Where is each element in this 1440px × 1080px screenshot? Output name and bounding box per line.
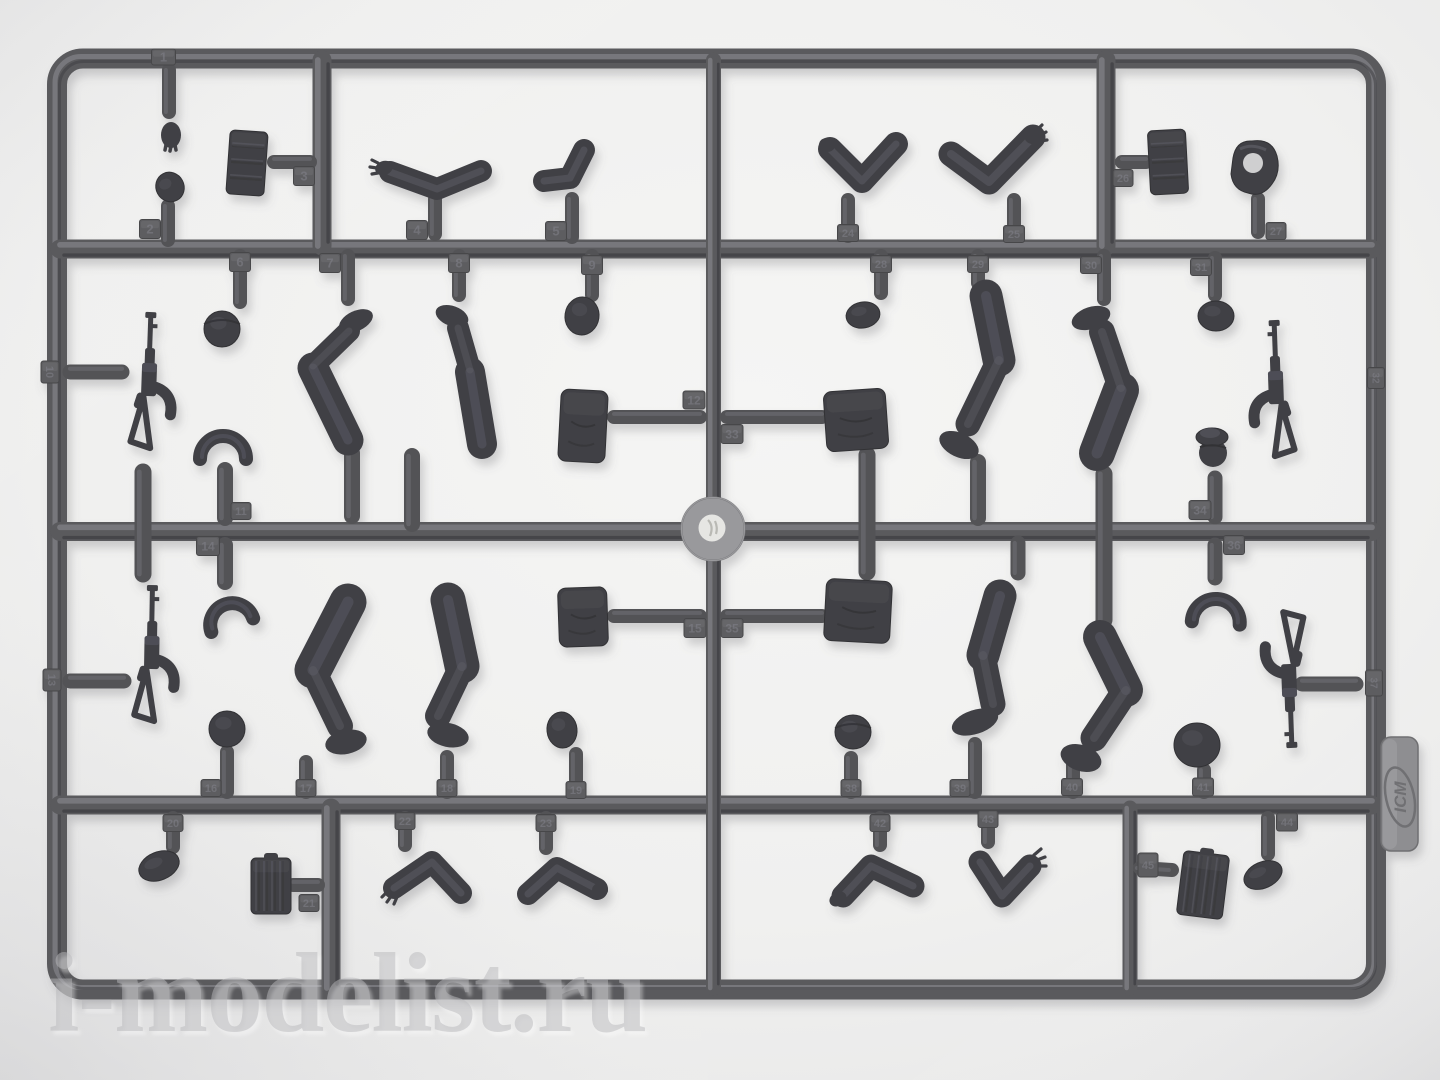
svg-text:37: 37 (1367, 677, 1378, 689)
svg-text:32: 32 (1369, 372, 1380, 384)
svg-text:35: 35 (725, 621, 739, 635)
svg-text:21: 21 (303, 898, 315, 910)
svg-text:39: 39 (954, 783, 966, 795)
svg-text:12: 12 (687, 393, 701, 407)
svg-text:25: 25 (1008, 229, 1020, 241)
svg-text:28: 28 (875, 259, 887, 271)
svg-text:40: 40 (1066, 782, 1078, 794)
svg-text:4: 4 (413, 223, 421, 238)
svg-text:22: 22 (399, 816, 411, 828)
svg-text:27: 27 (1270, 226, 1282, 238)
svg-text:44: 44 (1281, 817, 1294, 829)
svg-text:i-modelist.ru: i-modelist.ru (48, 931, 648, 1056)
svg-text:30: 30 (1085, 260, 1097, 272)
svg-text:18: 18 (441, 783, 453, 795)
svg-text:38: 38 (845, 783, 857, 795)
svg-text:34: 34 (1193, 503, 1207, 517)
svg-text:14: 14 (201, 539, 215, 553)
svg-text:9: 9 (588, 258, 595, 273)
svg-text:1: 1 (160, 50, 167, 65)
svg-text:20: 20 (167, 818, 179, 830)
svg-text:36: 36 (1227, 538, 1241, 552)
svg-text:29: 29 (972, 259, 984, 271)
svg-text:6: 6 (236, 255, 243, 270)
svg-text:8: 8 (455, 256, 462, 271)
svg-text:ICM: ICM (1391, 781, 1410, 813)
svg-text:15: 15 (688, 621, 702, 635)
svg-text:2: 2 (146, 222, 153, 237)
svg-text:5: 5 (552, 224, 559, 239)
svg-text:11: 11 (235, 506, 247, 518)
svg-text:26: 26 (1117, 173, 1129, 185)
svg-text:31: 31 (1195, 262, 1207, 274)
svg-text:43: 43 (982, 814, 994, 826)
svg-text:23: 23 (540, 818, 552, 830)
svg-text:7: 7 (326, 256, 333, 271)
svg-text:3: 3 (300, 169, 307, 184)
svg-text:13: 13 (45, 674, 57, 686)
svg-text:33: 33 (725, 427, 739, 441)
svg-text:45: 45 (1142, 860, 1154, 872)
svg-text:41: 41 (1197, 782, 1209, 794)
svg-text:24: 24 (842, 228, 855, 240)
svg-text:17: 17 (300, 783, 312, 795)
svg-text:16: 16 (205, 783, 217, 795)
svg-text:42: 42 (874, 818, 886, 830)
svg-text:19: 19 (570, 785, 582, 797)
svg-text:10: 10 (43, 366, 55, 378)
